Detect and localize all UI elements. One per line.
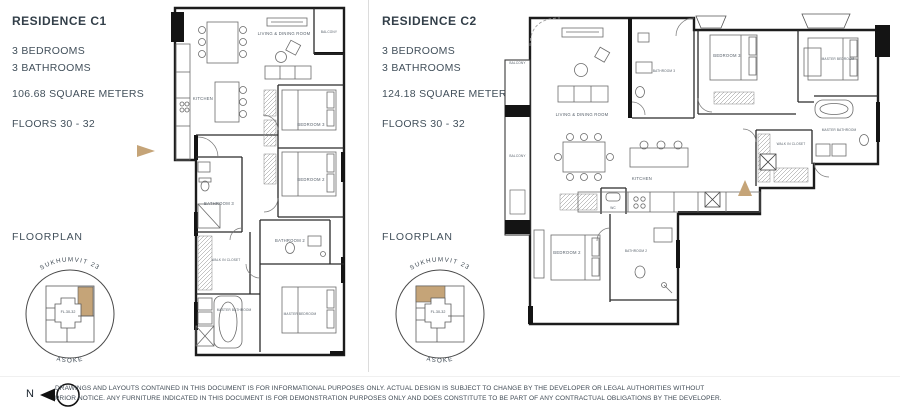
c2-keyplan: SUKHUMVIT 23 ASOKE FL.30-32 [384, 246, 500, 372]
c1-room-label-master-bathroom: MASTER BATHROOM [217, 308, 252, 312]
keyplan-unit-floors: FL.30-32 [61, 310, 76, 314]
c1-room-label-bedroom2: BEDROOM 2 [297, 177, 325, 182]
c2-room-label-walk-in-closet: WALK IN CLOSET [777, 142, 806, 146]
c2-room-label-bedroom2: BEDROOM 2 [553, 250, 581, 255]
c1-room-label-master-bedroom: MASTER BEDROOM [284, 312, 317, 316]
c1-keyplan: SUKHUMVIT 23 ASOKE FL.30-32 [14, 246, 130, 372]
c1-room-label-bathroom3: BATHROOM 3 [204, 201, 234, 206]
c2-room-label-bedroom3: BEDROOM 3 [713, 53, 741, 58]
c2-floorplan-heading: FLOORPLAN [382, 231, 453, 243]
c1-entry-arrow [137, 145, 155, 157]
keyplan-street-bottom: ASOKE [426, 356, 455, 365]
c2-room-label-bathroom3: BATHROOM 3 [653, 69, 675, 73]
c2-floorplan-drawing: BALCONY BALCONY LIVING & DINING ROOM BAT… [498, 2, 900, 336]
footer: N DRAWINGS AND LAYOUTS CONTAINED IN THIS… [0, 376, 900, 410]
c2-room-label-living: LIVING & DINING ROOM [556, 112, 609, 117]
c2-room-label-wc: WC [610, 206, 616, 210]
c1-room-label-living: LIVING & DINING ROOM [258, 31, 311, 36]
c1-room-label-bathroom2: BATHROOM 2 [275, 238, 305, 243]
panel-divider [368, 0, 369, 372]
c1-floorplan-drawing: LIVING & DINING ROOM BALCONY KITCHEN BED… [130, 2, 348, 370]
disclaimer: DRAWINGS AND LAYOUTS CONTAINED IN THIS D… [55, 384, 665, 404]
c1-room-label-kitchen: KITCHEN [193, 96, 213, 101]
keyplan-street-top: SUKHUMVIT 23 [39, 256, 101, 271]
c2-room-label-balcony-lower: BALCONY [509, 154, 526, 158]
c1-room-label-walk-in-closet: WALK IN CLOSET [212, 258, 241, 262]
keyplan-street-top: SUKHUMVIT 23 [409, 256, 471, 271]
c2-room-label-master-bedroom: MASTER BEDROOM [822, 57, 855, 61]
keyplan-building-footprint [46, 286, 94, 342]
keyplan-street-bottom: ASOKE [56, 356, 85, 365]
c2-balcony [505, 60, 530, 235]
disclaimer-line-1: DRAWINGS AND LAYOUTS CONTAINED IN THIS D… [55, 384, 665, 394]
c2-room-label-kitchen: KITCHEN [632, 176, 652, 181]
north-label: N [26, 388, 34, 400]
c2-room-label-bathroom2: BATHROOM 2 [625, 249, 647, 253]
keyplan-building-footprint [416, 286, 464, 342]
c2-room-label-master-bathroom: MASTER BATHROOM [822, 128, 857, 132]
brochure-page: RESIDENCE C1 3 BEDROOMS 3 BATHROOMS 106.… [0, 0, 900, 410]
disclaimer-line-2: PRIOR NOTICE. ANY FURNITURE INDICATED IN… [55, 394, 665, 404]
c1-room-label-balcony: BALCONY [321, 30, 338, 34]
c2-room-label-balcony-upper: BALCONY [509, 61, 526, 65]
c1-room-label-bedroom3: BEDROOM 3 [297, 122, 325, 127]
c1-floorplan-heading: FLOORPLAN [12, 231, 83, 243]
c2-ac-ledges [696, 14, 850, 28]
keyplan-unit-floors: FL.30-32 [431, 310, 446, 314]
